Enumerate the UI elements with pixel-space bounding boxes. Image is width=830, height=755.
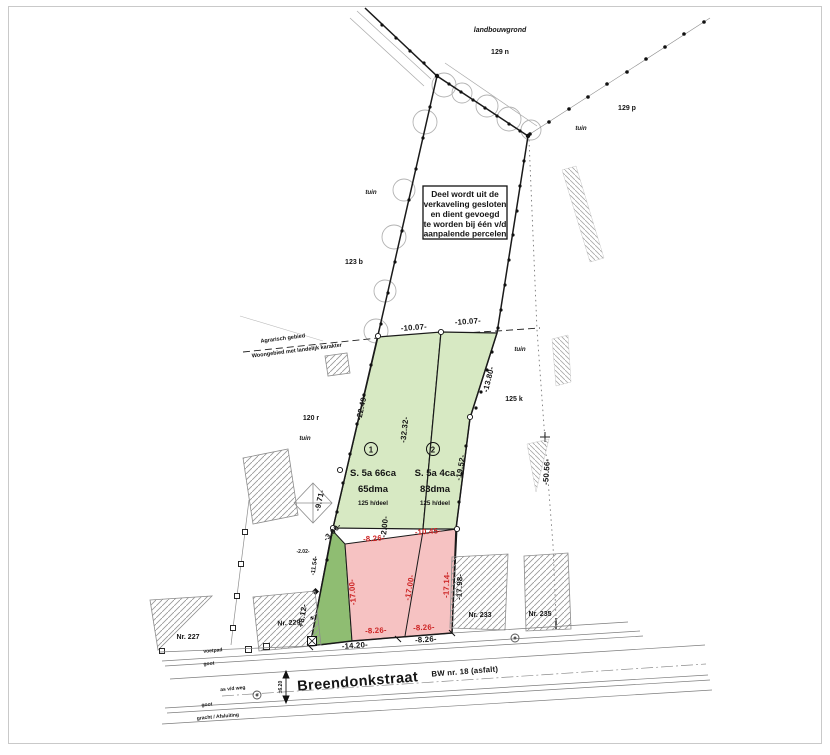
note-box: Deel wordt uit de verkaveling gesloten e… bbox=[423, 186, 507, 239]
measure-pink-bottom-right: -8.26- bbox=[413, 622, 435, 632]
lot-2-note: 125 h/deel bbox=[420, 500, 450, 507]
measure-pink-top-right: -10.45- bbox=[414, 526, 441, 537]
gutter-bottom-label: goot bbox=[201, 702, 213, 709]
tuin-label-w: tuin bbox=[299, 435, 311, 442]
measure-frontage-left: -14.20- bbox=[341, 640, 368, 651]
landbouwgrond-label: landbouwgrond bbox=[474, 27, 527, 34]
note-line-1: Deel wordt uit de bbox=[431, 189, 499, 199]
building-left bbox=[243, 449, 298, 524]
lot-2-number: 2 bbox=[431, 446, 436, 455]
measure-pink-bottom-left: -8.26- bbox=[365, 625, 387, 635]
lot-1-surface: S. 5a 66ca bbox=[350, 468, 397, 479]
house-nr227-label: Nr. 227 bbox=[177, 634, 200, 641]
parcel-129n-label: 129 n bbox=[491, 49, 509, 56]
lot-1-note: 125 h/deel bbox=[358, 500, 388, 507]
parcel-125k-label: 125 k bbox=[505, 396, 523, 403]
lot-1-surface-extra: 65dma bbox=[358, 484, 389, 495]
house-nr235-label: Nr. 235 bbox=[529, 611, 552, 618]
measure-right-dotted: -50.56- bbox=[541, 458, 552, 485]
lot-1-number: 1 bbox=[369, 446, 374, 455]
tuin-label-e: tuin bbox=[514, 346, 526, 353]
road-width-label: ±6.20 bbox=[278, 681, 284, 694]
measure-pink-left: -17.00- bbox=[347, 579, 358, 606]
parcel-120r-label: 120 r bbox=[303, 415, 320, 422]
pink-strip-polygon bbox=[345, 529, 457, 641]
measure-pink-right: -17.14- bbox=[442, 572, 452, 599]
note-line-4: te worden bij één v/d bbox=[424, 219, 507, 229]
lot-2-surface-extra: 83dma bbox=[420, 484, 451, 495]
tuin-label-ne: tuin bbox=[575, 125, 587, 132]
site-plan: Deel wordt uit de verkaveling gesloten e… bbox=[0, 0, 830, 750]
building-nr235 bbox=[524, 553, 571, 631]
measure-pink-right-black: -17.98- bbox=[455, 574, 465, 601]
gutter-top-label: goot bbox=[203, 661, 215, 668]
measure-top-left: -10.07- bbox=[400, 322, 427, 333]
house-nr229-label: Nr. 229 bbox=[277, 619, 300, 627]
note-line-5: aanpalende percelen bbox=[424, 229, 507, 239]
measure-top-right: -10.07- bbox=[454, 316, 481, 327]
note-line-3: en dient gevoegd bbox=[431, 209, 500, 219]
measure-frontage-right: -8.26- bbox=[415, 634, 437, 644]
lot-2-surface: S. 5a 4ca bbox=[415, 468, 456, 479]
tuin-label-nw: tuin bbox=[365, 189, 377, 196]
survey-marker-square bbox=[308, 637, 317, 646]
shed-hatched bbox=[325, 353, 350, 376]
note-line-2: verkaveling gesloten bbox=[424, 199, 507, 209]
parcel-129p-label: 129 p bbox=[618, 105, 636, 112]
measure-tie: -2.02- bbox=[296, 549, 309, 555]
house-nr233-label: Nr. 233 bbox=[469, 612, 492, 619]
parcel-123b-label: 123 b bbox=[345, 259, 363, 266]
measure-pink-top-left: -8.26- bbox=[363, 533, 385, 543]
